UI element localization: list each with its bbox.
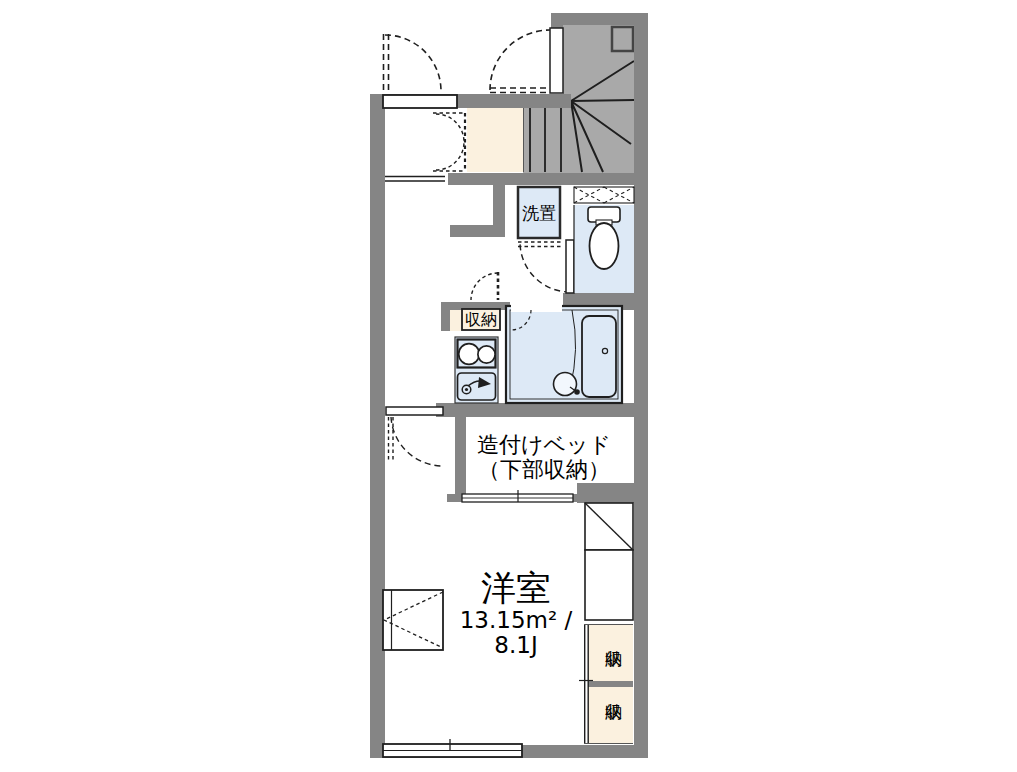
shoe-closet-edges	[433, 113, 465, 171]
hall-nook-wall-h	[450, 225, 505, 237]
closet-upper-label: 収納	[601, 636, 623, 638]
room-door-swing	[391, 417, 443, 466]
washroom-doorway	[518, 242, 561, 247]
closet-divider-wall	[588, 681, 633, 687]
fridge-top-wall	[577, 483, 634, 503]
closet-lower-box	[588, 687, 633, 743]
kitchen-unit	[455, 337, 498, 403]
room-name: 洋室	[416, 568, 616, 608]
bath-bottom-wall	[436, 403, 634, 417]
porch-door-swing-left	[385, 35, 441, 91]
washroom-door-swing	[520, 242, 570, 292]
bath-entrance-gap	[511, 303, 562, 312]
shoe-closet-door-swings	[436, 114, 464, 170]
room-door-leaf	[389, 417, 394, 462]
porch-dashed-jamb-right	[490, 88, 548, 93]
storage-door-swing	[471, 273, 498, 300]
bed-label-line2: （下部収納）	[444, 457, 644, 482]
room-door	[386, 407, 443, 466]
bathtub	[582, 316, 616, 397]
genkan-floor	[467, 108, 523, 172]
top-window	[383, 95, 457, 108]
kitchen-side-stub	[441, 310, 450, 331]
genkan-bottom-wall	[448, 173, 634, 185]
stove-burner-right	[478, 346, 495, 363]
floor-plan: 洗置 収納 造付けベッド （下部収納） 洋室 13.15m² / 8.1J 収納…	[0, 0, 1017, 772]
entry-door-swing	[490, 30, 550, 90]
stair-top-wall	[551, 13, 634, 25]
right-outer-wall	[634, 13, 648, 758]
bottom-sliding-window	[383, 739, 522, 757]
built-in-bed-label: 造付けベッド （下部収納）	[444, 432, 644, 482]
western-room-label: 洋室 13.15m² / 8.1J	[416, 568, 616, 658]
closet-lower-label: 収納	[601, 689, 623, 691]
room-area-tatami: 8.1J	[416, 633, 616, 658]
built-in-bed-area	[462, 490, 573, 502]
wash-basin	[554, 373, 577, 396]
room-area-sqm: 13.15m² /	[416, 608, 616, 633]
room-door-lintel	[386, 407, 443, 415]
toilet-room	[574, 205, 634, 293]
bathroom	[506, 303, 622, 403]
stove-burner-left	[459, 344, 480, 365]
toilet-bowl	[590, 223, 619, 269]
porch-dashed-jamb-left	[384, 34, 389, 91]
left-outer-wall	[370, 94, 385, 758]
entrance-porch	[384, 28, 564, 93]
meter-box	[612, 27, 633, 51]
entry-door-opening	[550, 28, 563, 93]
hall-step-lines	[385, 177, 445, 182]
genkan	[385, 108, 523, 181]
washroom-door-leaf	[566, 240, 574, 293]
toilet-louver-window	[574, 187, 634, 203]
stair-stub-wall	[551, 94, 571, 108]
bed-label-line1: 造付けベッド	[444, 432, 644, 457]
hall-storage-label: 収納	[461, 310, 501, 331]
washer-place-label: 洗置	[518, 202, 560, 225]
